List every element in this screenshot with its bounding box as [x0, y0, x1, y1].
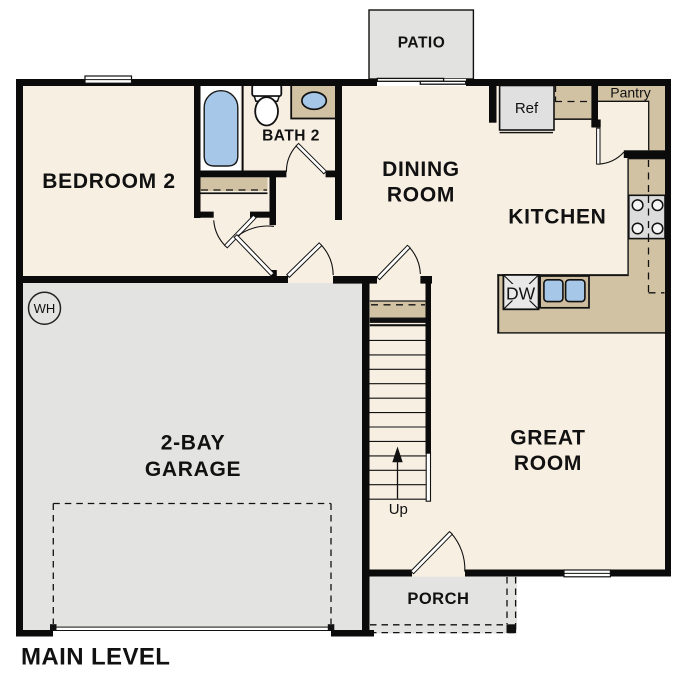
svg-text:WH: WH [34, 301, 56, 316]
svg-text:PORCH: PORCH [407, 590, 469, 608]
svg-text:DW: DW [506, 284, 536, 304]
svg-text:KITCHEN: KITCHEN [508, 205, 606, 228]
svg-text:BATH 2: BATH 2 [262, 128, 320, 145]
svg-text:Ref: Ref [515, 100, 539, 117]
svg-text:MAIN LEVEL: MAIN LEVEL [21, 643, 170, 670]
svg-text:ROOM: ROOM [387, 184, 455, 207]
svg-text:2-BAY: 2-BAY [161, 432, 226, 455]
svg-text:Up: Up [389, 501, 408, 518]
svg-text:BEDROOM 2: BEDROOM 2 [42, 170, 175, 193]
svg-text:ROOM: ROOM [514, 452, 582, 475]
svg-text:GARAGE: GARAGE [145, 458, 241, 481]
svg-text:DINING: DINING [382, 158, 460, 181]
svg-text:Pantry: Pantry [610, 85, 650, 101]
svg-text:PATIO: PATIO [398, 35, 446, 52]
svg-text:GREAT: GREAT [510, 426, 585, 449]
